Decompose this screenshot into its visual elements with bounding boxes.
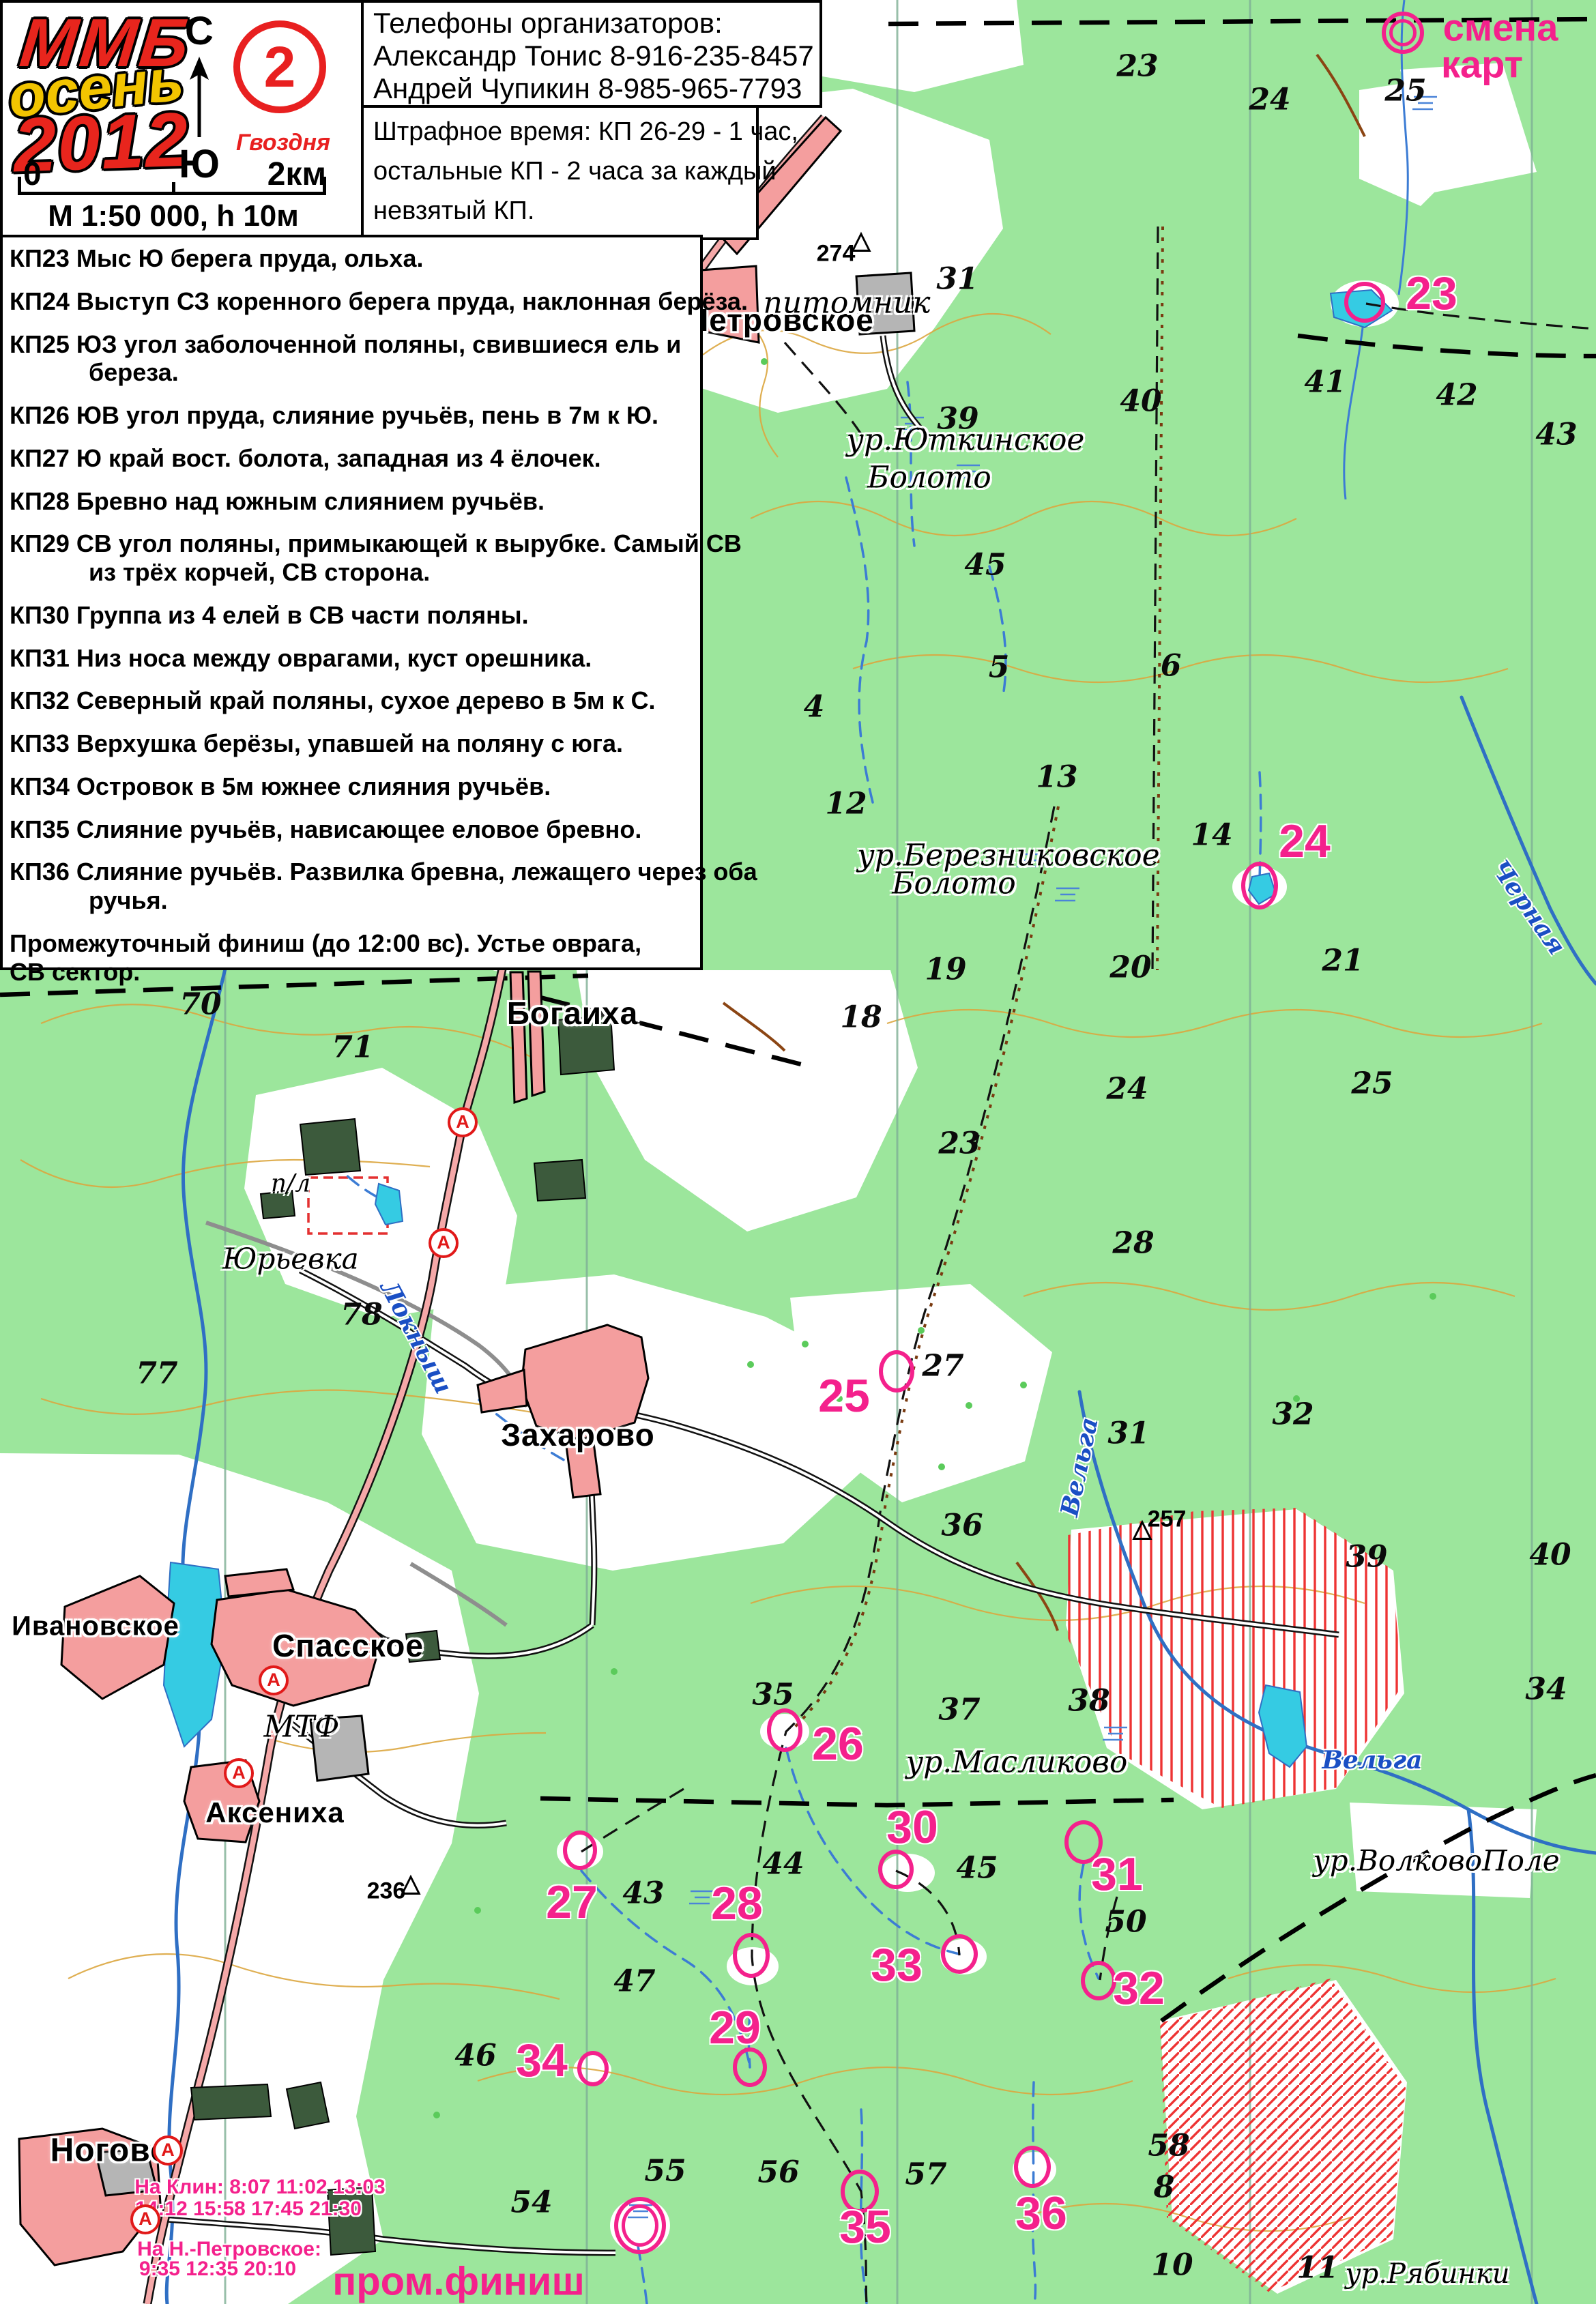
checkpoint-id: КП25 [10,330,70,358]
checkpoint-id: КП28 [10,487,70,515]
scale-bar-line [18,177,326,195]
checkpoint-id: КП36 [10,858,70,886]
legend-logo-panel: ММБ осень 2012 С Ю 2 Гвоздня 0 2км М 1:5… [0,0,364,237]
checkpoint-id: КП23 [10,244,70,272]
phone-line-2: Андрей Чупикин 8-985-965-7793 [373,72,802,105]
organizer-phones-panel: Телефоны организаторов: Александр Тонис … [361,0,822,108]
checkpoint-id: КП27 [10,444,70,472]
checkpoint-id: КП30 [10,601,70,629]
checkpoint-id: КП35 [10,815,70,843]
checkpoint-id: КП31 [10,644,70,672]
penalty-line-3: невзятый КП. [373,196,534,226]
scale-bar: 0 2км [18,165,326,195]
checkpoint-description: Промежуточный финиш (до 12:00 вс). Устье… [10,929,682,987]
checkpoint-description: КП25 ЮЗ угол заболоченной поляны, свивши… [10,330,761,388]
penalty-line-2: остальные КП - 2 часа за каждый [373,157,777,186]
map-river-name: Гвоздня [232,130,334,156]
checkpoint-description: КП26 ЮВ угол пруда, слияние ручьёв, пень… [10,401,761,430]
penalty-line-1: Штрафное время: КП 26-29 - 1 час, [373,117,798,147]
orienteering-map-page: ПетровскоеБогаихаЗахаровоИвановскоеСпасс… [0,0,1596,2304]
checkpoint-id: КП26 [10,401,70,429]
checkpoint-descriptions-panel: КП23 Мыс Ю берега пруда, ольха.КП24 Выст… [0,235,703,970]
checkpoint-description: КП27 Ю край вост. болота, западная из 4 … [10,444,761,473]
checkpoint-id: КП24 [10,287,70,315]
checkpoint-description: КП35 Слияние ручьёв, нависающее еловое б… [10,815,761,844]
checkpoint-description: КП28 Бревно над южным слиянием ручьёв. [10,487,761,516]
map-scale-caption: М 1:50 000, h 10м [3,199,344,233]
compass-north-label: С [185,9,214,53]
checkpoint-description: КП36 Слияние ручьёв. Развилка бревна, ле… [10,858,761,915]
phones-title: Телефоны организаторов: [373,7,723,40]
checkpoint-description: КП24 Выступ СЗ коренного берега пруда, н… [10,287,761,316]
map-number-badge: 2 [233,20,326,113]
checkpoint-id: КП32 [10,686,70,714]
checkpoint-description: КП34 Островок в 5м южнее слияния ручьёв. [10,772,761,801]
penalty-rules-panel: Штрафное время: КП 26-29 - 1 час, осталь… [361,105,759,240]
checkpoint-description-list: КП23 Мыс Ю берега пруда, ольха.КП24 Выст… [3,237,700,986]
checkpoint-description: КП31 Низ носа между оврагами, куст орешн… [10,644,761,673]
checkpoint-description: КП29 СВ угол поляны, примыкающей к выруб… [10,529,761,587]
phone-line-1: Александр Тонис 8-916-235-8457 [373,40,814,72]
checkpoint-id: КП34 [10,772,70,800]
checkpoint-id: КП29 [10,529,70,557]
north-arrow-icon [188,57,211,138]
checkpoint-description: КП30 Группа из 4 елей в СВ части поляны. [10,601,761,630]
checkpoint-description: КП33 Верхушка берёзы, упавшей на поляну … [10,729,761,758]
checkpoint-description: КП32 Северный край поляны, сухое дерево … [10,686,761,715]
checkpoint-id: КП33 [10,729,70,757]
checkpoint-description: КП23 Мыс Ю берега пруда, ольха. [10,244,761,273]
